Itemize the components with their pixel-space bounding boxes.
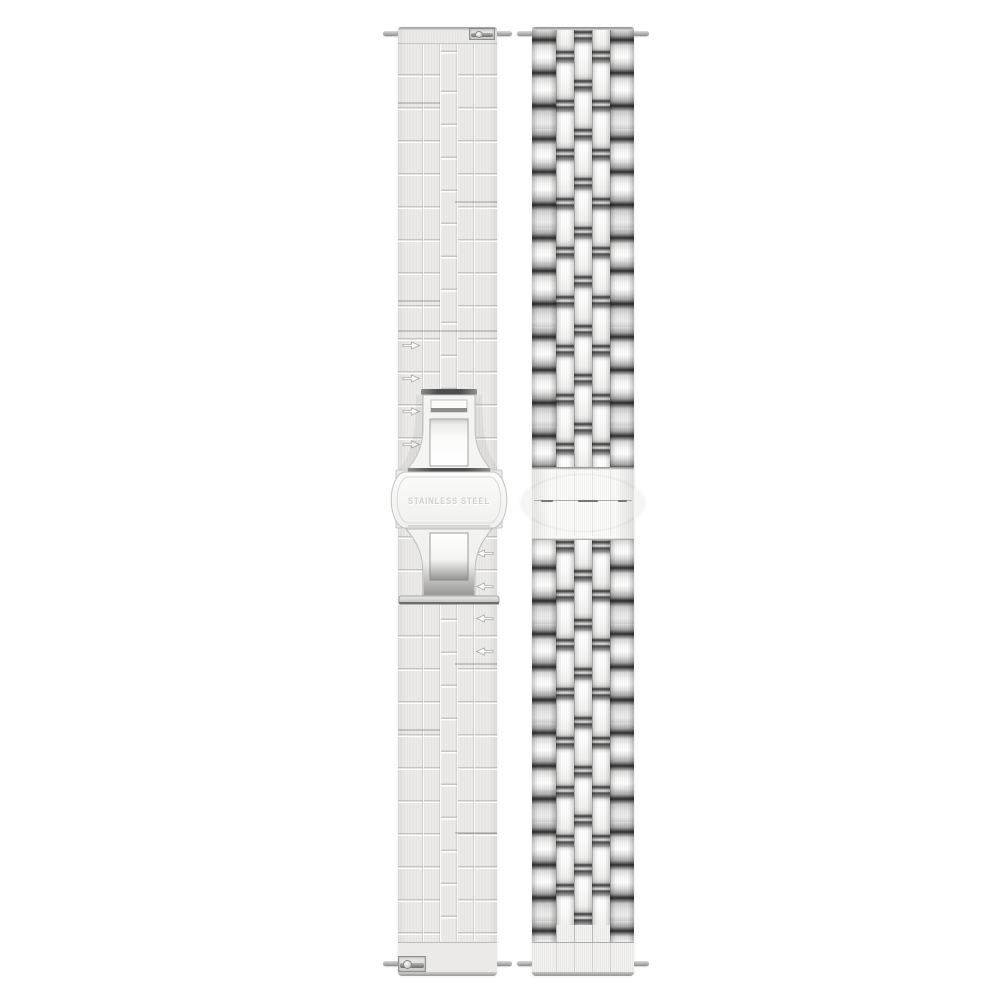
link-groove [574,471,575,536]
spring-bar-pin [517,31,533,36]
link-direction-arrow [475,614,494,623]
link-groove [592,471,593,536]
clasp-back-panel [532,467,634,540]
spring-bar-pin [496,31,512,36]
clasp-foot-shading [424,561,474,595]
end-link-seam [398,43,497,44]
link-groove [610,471,611,536]
band-top-edge [532,27,634,30]
product-photo: STAINLESS STEEL STAINLESS STEEL [0,0,1000,1000]
watch-band-back-view: STAINLESS STEEL STAINLESS STEEL [398,27,497,975]
clasp-top-hinge [421,389,477,395]
link-joint-shadow [398,102,440,104]
link-joint-shadow [398,729,440,731]
quick-release-lever [398,956,426,972]
link-joint-shadow [455,663,497,665]
clasp-slot-shadow [431,408,467,412]
clasp-joint-line [532,467,634,470]
spring-bar-pin [517,961,533,966]
clasp-cover-bottom-bar [408,525,490,529]
end-link [532,942,634,976]
link-groove [556,471,557,536]
watch-band-front-view [532,27,634,975]
link-direction-arrow [402,374,421,383]
link-direction-arrow [475,647,494,656]
clasp-engraving: STAINLESS STEEL [408,496,490,507]
spring-bar-pin [633,31,649,36]
spring-bar-pin [496,961,512,966]
quick-release-knob [403,960,412,969]
clasp-seam-detail [578,500,598,502]
spring-bar-pin [633,961,649,966]
spring-bar-pin [383,31,399,36]
band-bottom-edge [398,972,497,976]
clasp-seam-detail [541,500,553,502]
clasp-seam-detail [618,500,627,502]
link-joint-shadow [398,300,440,302]
link-joint-shadow [398,330,497,332]
band-bottom-edge [532,972,634,976]
link-direction-arrow [402,341,421,350]
clasp-window [430,419,468,466]
clasp-joint-line [532,538,634,541]
clasp-base-plate-edge [399,602,499,605]
quick-release-lever [469,28,495,40]
quick-release-knob [475,31,483,38]
link-joint-shadow [455,832,497,834]
link-joint-shadow [455,201,497,203]
butterfly-clasp: STAINLESS STEEL STAINLESS STEEL [385,383,515,615]
spring-bar-pin [383,961,399,966]
